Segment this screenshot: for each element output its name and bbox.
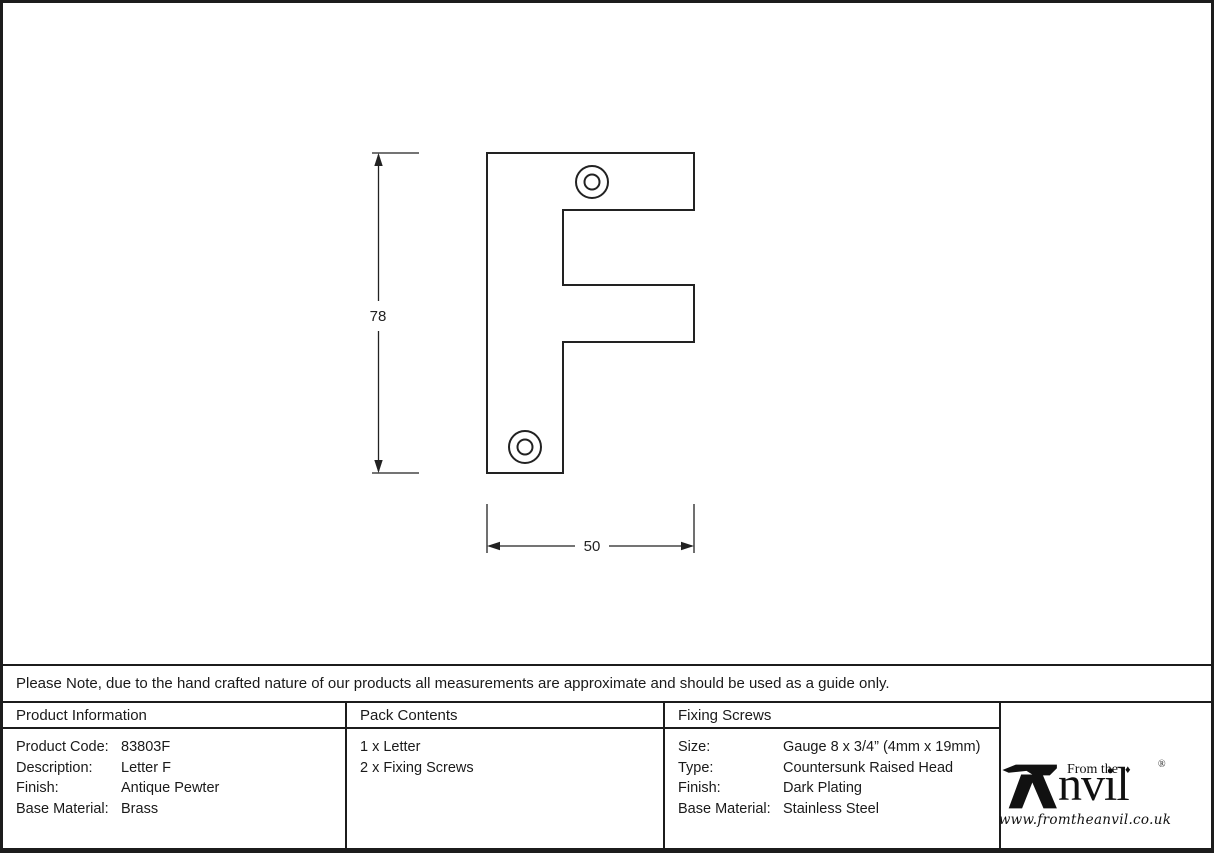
letter-f-drawing: 78 50 [3,3,1211,664]
table-row: Finish: Dark Plating [678,778,999,799]
table-row: Base Material: Brass [16,799,345,820]
anvil-icon [1001,762,1061,812]
spec-value: Letter F [121,760,345,776]
table-row: Size: Gauge 8 x 3/4” (4mm x 19mm) [678,737,999,758]
logo-url: www.fromtheanvil.co.uk [997,812,1173,828]
spec-value: Countersunk Raised Head [783,760,999,776]
product-information-header-label: Product Information [16,707,147,724]
spec-label: Type: [678,760,783,776]
table-row: Base Material: Stainless Steel [678,799,999,820]
table-row: Type: Countersunk Raised Head [678,758,999,779]
spec-value: Brass [121,801,345,817]
brand-logo: From the♦ nvil ® www.fromtheanvil.co.uk [1001,762,1169,832]
list-item: 1 x Letter [360,737,663,758]
product-info-table: Product Information Product Code: 83803F… [3,703,1211,848]
logo-wordmark: nvil [1058,756,1129,814]
table-row: Description: Letter F [16,758,345,779]
pack-contents-header: Pack Contents [347,703,663,729]
table-row: Finish: Antique Pewter [16,778,345,799]
spec-label: Base Material: [678,801,783,817]
technical-drawing: 78 50 [3,3,1211,664]
spec-label: Description: [16,760,121,776]
product-information-column: Product Information Product Code: 83803F… [3,703,347,848]
table-row: Product Code: 83803F [16,737,345,758]
width-dimension-label: 50 [584,538,601,555]
letter-outline [487,153,694,473]
brand-logo-cell: From the♦ nvil ® www.fromtheanvil.co.uk [1001,703,1211,848]
datasheet-page: 78 50 Please Note, due to the hand craft… [0,0,1214,853]
spec-label: Finish: [16,780,121,796]
spec-label: Product Code: [16,739,121,755]
measurement-note-text: Please Note, due to the hand crafted nat… [16,675,890,692]
product-information-body: Product Code: 83803F Description: Letter… [3,729,345,819]
spec-label: Base Material: [16,801,121,817]
spec-value: 83803F [121,739,345,755]
fixing-screws-header: Fixing Screws [665,703,999,729]
pack-contents-body: 1 x Letter 2 x Fixing Screws [347,729,663,778]
spec-value: Stainless Steel [783,801,999,817]
height-dimension-label: 78 [370,308,387,325]
registered-trademark-icon: ® [1158,759,1166,770]
fixing-screws-body: Size: Gauge 8 x 3/4” (4mm x 19mm) Type: … [665,729,999,819]
spec-label: Finish: [678,780,783,796]
pack-contents-column: Pack Contents 1 x Letter 2 x Fixing Scre… [347,703,665,848]
spec-value: Gauge 8 x 3/4” (4mm x 19mm) [783,739,999,755]
spec-value: Antique Pewter [121,780,345,796]
spec-value: Dark Plating [783,780,999,796]
fixing-screws-column: Fixing Screws Size: Gauge 8 x 3/4” (4mm … [665,703,1001,848]
spec-label: Size: [678,739,783,755]
product-information-header: Product Information [3,703,345,729]
measurement-note: Please Note, due to the hand crafted nat… [3,664,1211,703]
fixing-screws-header-label: Fixing Screws [678,707,771,724]
list-item: 2 x Fixing Screws [360,758,663,779]
pack-contents-header-label: Pack Contents [360,707,458,724]
